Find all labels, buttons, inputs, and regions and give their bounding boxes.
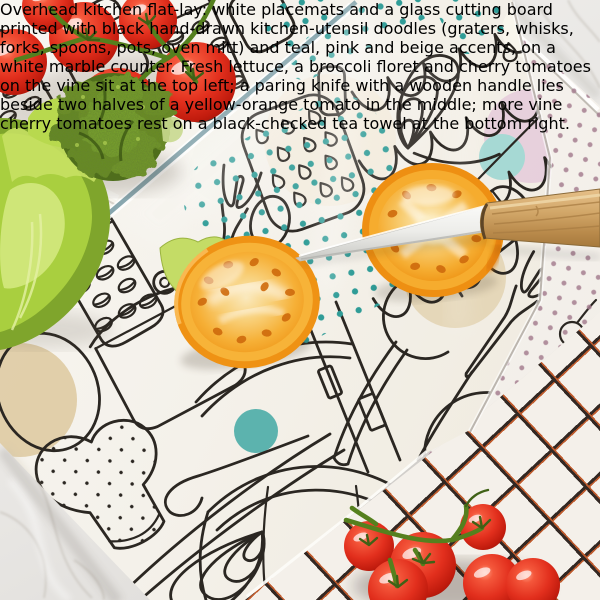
kitchen-flatlay-photo: Overhead kitchen flat-lay: white placema…	[0, 0, 600, 600]
scene-caption: Overhead kitchen flat-lay: white placema…	[0, 0, 600, 600]
